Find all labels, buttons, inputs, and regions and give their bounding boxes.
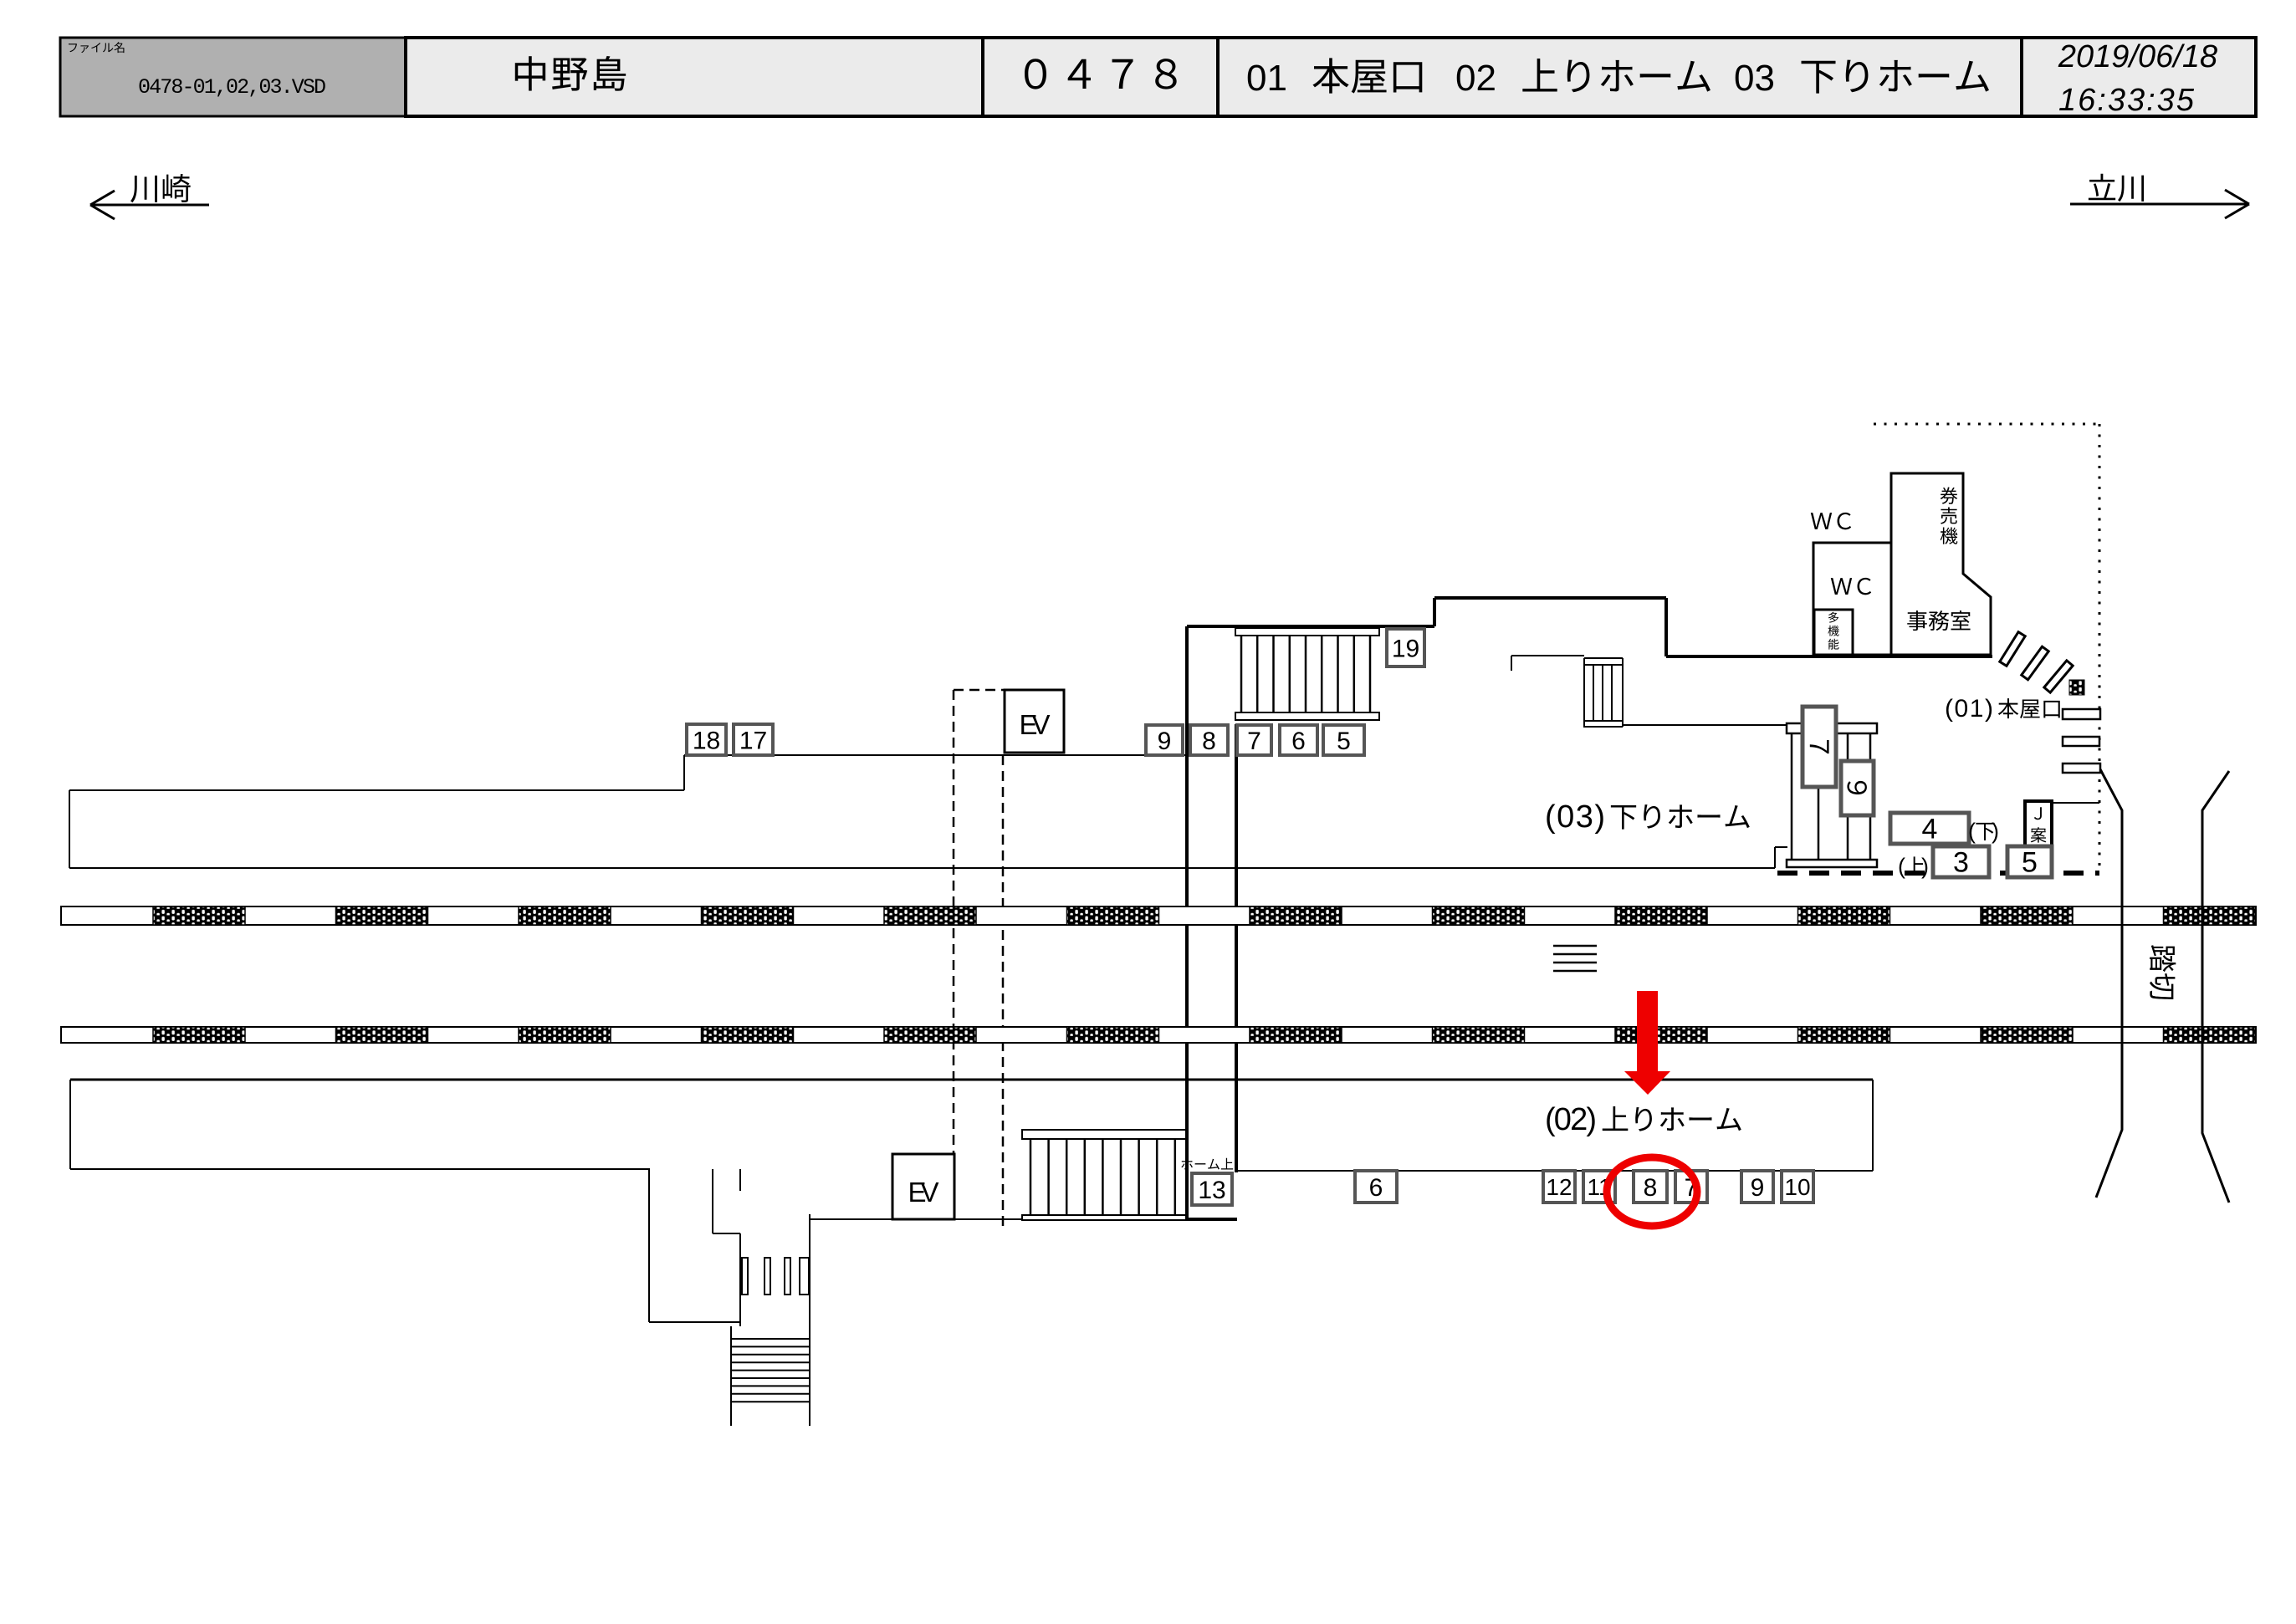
svg-text:9: 9 bbox=[1158, 728, 1172, 755]
svg-text:(: ( bbox=[1968, 819, 1976, 844]
svg-text:0478-01,02,03.VSD: 0478-01,02,03.VSD bbox=[138, 75, 326, 100]
svg-text:(: ( bbox=[1898, 854, 1905, 879]
svg-text:7: 7 bbox=[1247, 728, 1261, 755]
svg-text:8: 8 bbox=[1202, 728, 1216, 755]
svg-text:): ) bbox=[1992, 819, 1999, 844]
svg-text:4: 4 bbox=[1922, 814, 1938, 845]
svg-text:9: 9 bbox=[1751, 1174, 1765, 1202]
svg-text:17: 17 bbox=[739, 727, 767, 754]
svg-text:03: 03 bbox=[1734, 58, 1775, 99]
svg-text:19: 19 bbox=[1392, 635, 1419, 662]
svg-text:16:33:35: 16:33:35 bbox=[2058, 83, 2196, 118]
svg-text:8: 8 bbox=[1644, 1174, 1658, 1202]
svg-text:): ) bbox=[1921, 854, 1929, 879]
svg-text:6: 6 bbox=[1291, 728, 1306, 755]
svg-text:13: 13 bbox=[1198, 1177, 1225, 1204]
svg-text:3: 3 bbox=[1953, 847, 1969, 879]
svg-text:EV: EV bbox=[908, 1177, 939, 1208]
svg-text:(01): (01) bbox=[1945, 695, 1993, 723]
svg-text:01: 01 bbox=[1246, 58, 1287, 99]
svg-text:10: 10 bbox=[1784, 1174, 1810, 1200]
svg-text:5: 5 bbox=[2022, 847, 2038, 879]
svg-text:(03): (03) bbox=[1545, 799, 1605, 835]
svg-text:6: 6 bbox=[1369, 1174, 1383, 1202]
svg-text:2019/06/18: 2019/06/18 bbox=[2058, 39, 2217, 74]
svg-text:02: 02 bbox=[1455, 58, 1496, 99]
svg-text:12: 12 bbox=[1546, 1174, 1572, 1200]
svg-text:18: 18 bbox=[693, 727, 720, 754]
svg-text:(02): (02) bbox=[1545, 1102, 1597, 1137]
svg-text:5: 5 bbox=[1337, 728, 1351, 755]
svg-text:EV: EV bbox=[1020, 709, 1051, 740]
